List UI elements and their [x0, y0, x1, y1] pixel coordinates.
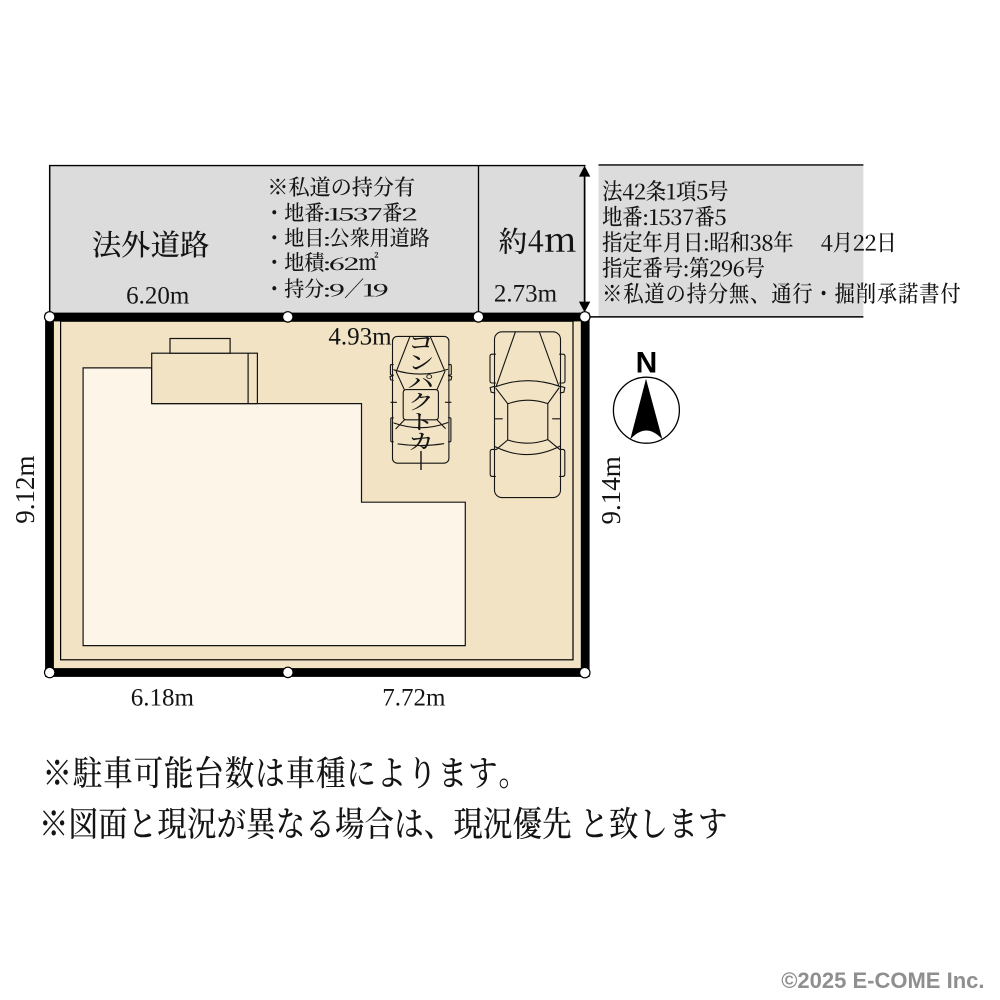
svg-text:N: N — [636, 347, 658, 380]
svg-text:9.12m: 9.12m — [10, 455, 40, 523]
svg-text:7.72m: 7.72m — [382, 685, 446, 712]
svg-text:6.18m: 6.18m — [131, 685, 195, 712]
svg-text:©2025 E-COME Inc.: ©2025 E-COME Inc. — [781, 968, 984, 993]
svg-text:9.14m: 9.14m — [596, 456, 626, 524]
svg-text:4.93m: 4.93m — [328, 324, 392, 351]
svg-text:6.20m: 6.20m — [126, 282, 190, 309]
svg-text:2.73m: 2.73m — [494, 281, 558, 308]
